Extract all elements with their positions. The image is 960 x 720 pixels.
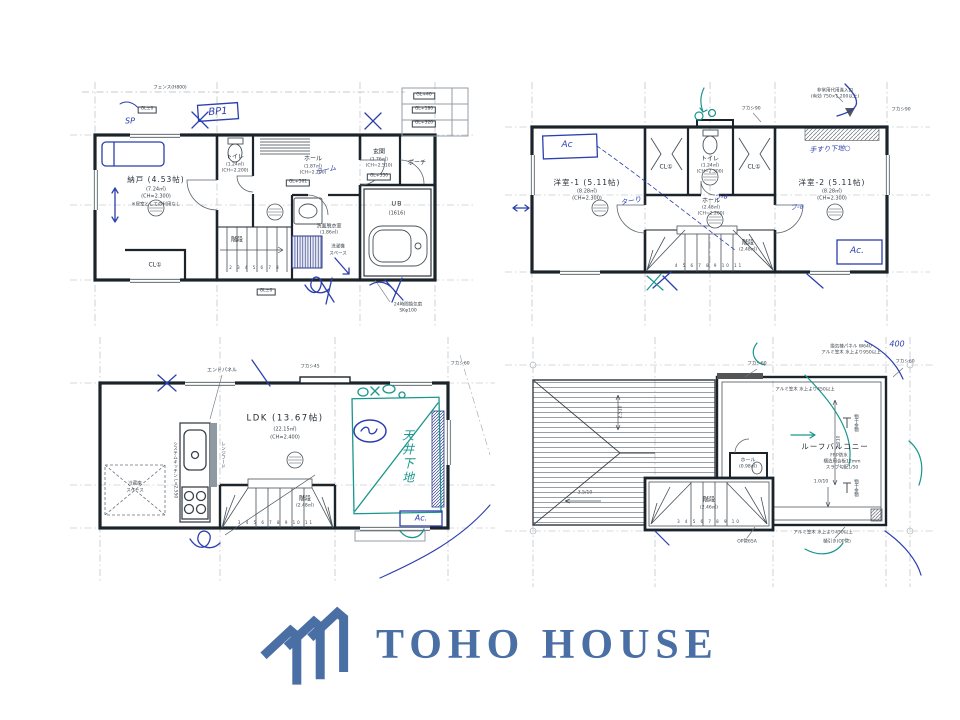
fence-note: フェンス(H800): [153, 87, 186, 92]
dim-roof: 2,510: [620, 406, 625, 419]
level-gl0-bottom: GL±0: [257, 289, 276, 296]
toho-house-logo-text: TOHO HOUSE: [376, 621, 719, 669]
room-area-w1: (8.28㎡): [577, 189, 597, 195]
handwritten-sp: SP: [125, 118, 135, 127]
room-label-ub: UB: [391, 200, 402, 207]
room-label-genkan: 玄関: [373, 150, 385, 157]
pipe-note-2: 樋引き(OP管): [823, 541, 851, 546]
porch-step: [355, 531, 425, 541]
roof-slope-left: 3.5/10: [578, 492, 592, 497]
wall-hatch-strip: [432, 411, 444, 507]
roof-balcony-drawing: [505, 335, 935, 590]
room-label-closet: CL①: [149, 263, 162, 270]
pipe-note-1: OP管65A: [737, 541, 757, 546]
stair-numbers: 2 3 4 5 6 7 8: [229, 266, 280, 270]
kitchen: [180, 423, 217, 522]
kitchen-note: システムキッチン L=2,550: [172, 442, 177, 499]
endpanel-note: エンドパネル: [207, 368, 237, 374]
room-label-toilet: トイレ: [226, 155, 244, 162]
pen-green-marks: [352, 385, 441, 538]
floor-plan-ldk: LDK (13.67帖) (22.15㎡) (CH=2.400) エンドパネル …: [70, 335, 495, 585]
floor-plan-2f: 洋室-1 (5.11帖) (8.28㎡) (CH=2.300) 洋室-2 (5.…: [505, 80, 930, 330]
handwritten-dim-400: 400: [889, 341, 904, 350]
level-gl320: GL+320: [412, 121, 436, 128]
room-label-cl1: CL①: [660, 165, 673, 172]
handwritten-ac2: Ac.: [850, 247, 864, 257]
grid-lines: [70, 337, 495, 583]
room-ch-genkan: (CH=2.510): [366, 165, 393, 170]
entrance-mat: [260, 139, 310, 154]
rangehood-note: レンジフード: [220, 442, 225, 469]
balcony-label: ルーフバルコニー: [801, 443, 868, 451]
ceiling-light: [592, 200, 608, 216]
level-gl180: GL+180: [412, 107, 436, 114]
toho-house-logo: TOHO HOUSE: [258, 600, 719, 690]
room-ch-toilet: (CH=2.200): [222, 170, 249, 175]
kasagi-950-note: アルミ笠木 水上より950以上: [821, 352, 880, 357]
room-area-stairs: (2.46㎡): [700, 507, 718, 512]
room-note-nando: ※居室としての利用なし: [132, 204, 181, 209]
fukashi60-note: フカシ60: [450, 363, 469, 368]
laundry-label-1: 洗濯機: [331, 246, 345, 251]
room-area-stairs: (2.48㎡): [739, 249, 757, 254]
room-area-w2: (8.28㎡): [822, 189, 842, 195]
room-ch-toilet: (CH=2.300): [697, 171, 724, 176]
stair-numbers: 4 5 6 7 8 9 10 11: [675, 264, 743, 268]
walls: [100, 377, 448, 528]
room-area-ldk: (22.15㎡): [273, 427, 296, 433]
balcony-slope-down: 1.0/10: [814, 481, 828, 486]
room-area-stairs: (2.48㎡): [296, 505, 314, 510]
fukashi-note-right: フカシ60: [895, 361, 914, 366]
room-area-nando: (7.24㎡): [146, 187, 166, 193]
stair-numbers: 3 4 5 6 7 8 9 10: [677, 520, 741, 524]
fukashi45-note: フカシ45: [300, 366, 319, 371]
fukashi-note-right: フカシ90: [891, 109, 910, 114]
balcony-slope-note: スラブ勾配1/50: [826, 467, 859, 472]
handwritten-bp1: BP1: [208, 106, 228, 118]
handwritten-ac1: Ac: [561, 141, 572, 151]
room-ch-w2: (CH=2.300): [817, 196, 847, 202]
monohoshi-label-1: 物干金物: [853, 414, 858, 432]
roof-balcony-plan: ルーフバルコニー FRP防水 構造用合板12mm スラブ勾配1/50 階段 (2…: [505, 335, 935, 590]
room-label-hall: ホール: [740, 458, 755, 464]
monohoshi-label-2: 物干金物: [853, 479, 858, 497]
room-label-stairs: 階段: [299, 497, 311, 504]
room-label-w2: 洋室-2 (5.11帖): [799, 179, 866, 187]
kasagi-450-top-note: アルミ笠木 水上より450以上: [775, 389, 834, 394]
level-gl561: GL+561: [286, 180, 310, 187]
toho-house-logo-icon: [258, 600, 350, 690]
room-label-stairs: 階段: [703, 498, 715, 505]
room-label-senmen: 洗面脱衣室: [316, 224, 341, 230]
room-ch-nando: (CH=2.300): [141, 194, 171, 200]
room-label-toilet: トイレ: [701, 157, 719, 164]
stair-numbers: 3 4 5 6 7 8 9 10 11: [238, 521, 314, 525]
fukashi-note-left: フカシ60: [747, 363, 766, 368]
room-ch-hall: (CH=2.200): [698, 213, 725, 218]
level-gl0-top: GL±0: [138, 107, 157, 114]
ceiling-light: [827, 204, 843, 220]
kasagi-450-bottom-note: アルミ笠木 水上より450以上: [793, 532, 852, 537]
room-size-ub: (1616): [389, 211, 406, 217]
handwritten-ac: Ac.: [415, 515, 427, 524]
fridge-label-1: 冷蔵庫: [128, 483, 142, 488]
room-label-stairs: 階段: [231, 238, 243, 245]
laundry-label-2: スペース: [329, 253, 346, 258]
ceiling-light: [267, 204, 283, 220]
room-area-hall: (0.98㎡): [739, 466, 757, 471]
room-label-porch: ポーチ: [408, 161, 426, 168]
laundry-hatch: [292, 236, 322, 268]
fukashi-note-left: フカシ90: [741, 108, 760, 113]
ceiling-light: [287, 452, 303, 468]
room-label-stairs: 階段: [742, 241, 754, 248]
room-label-nando: 納戸 (4.53帖): [127, 176, 184, 184]
level-gl40: GL+40: [413, 93, 435, 100]
room-label-cl2: CL①: [748, 165, 761, 172]
room-label-hall: ホール: [304, 157, 322, 164]
floor-plan-ldk-drawing: [70, 335, 495, 585]
room-label-w1: 洋室-1 (5.11帖): [554, 179, 621, 187]
level-gl350: GL+350: [367, 174, 391, 181]
room-area-senmen: (1.86㎡): [320, 232, 338, 237]
floor-plan-sheet: 納戸 (4.53帖) (7.24㎡) (CH=2.300) ※居室としての利用な…: [0, 0, 960, 720]
dim-vertical: 2,210: [838, 436, 843, 449]
fixtures: [703, 130, 718, 154]
emergency-note-2: (有効 750×1,200以上): [811, 96, 859, 101]
vent-note-2: SKφ100: [399, 310, 416, 315]
handwritten-ceiling-note: 天井下地: [400, 429, 413, 485]
fridge-label-2: スペース: [126, 490, 143, 495]
room-ch-ldk: (CH=2.400): [270, 435, 300, 441]
room-label-ldk: LDK (13.67帖): [246, 414, 323, 423]
floor-plan-1f: 納戸 (4.53帖) (7.24㎡) (CH=2.300) ※居室としての利用な…: [70, 80, 475, 330]
hatched-strip: [805, 129, 879, 141]
room-ch-w1: (CH=2.300): [572, 196, 602, 202]
